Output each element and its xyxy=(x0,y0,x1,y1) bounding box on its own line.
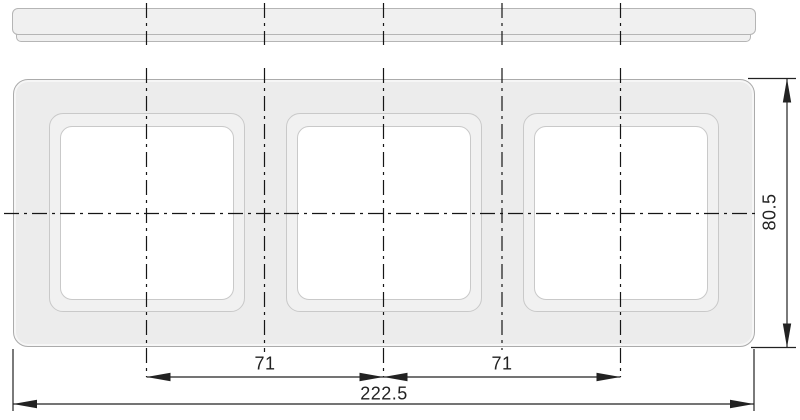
arrowhead-down-icon xyxy=(783,324,791,348)
arrowhead-right-icon xyxy=(597,373,621,381)
dimension-label-pitch-right: 71 xyxy=(491,354,512,375)
module-1-opening xyxy=(60,126,234,300)
dimension-label-overall-height: 80.5 xyxy=(760,193,781,230)
arrowhead-right-icon xyxy=(730,400,754,408)
arrowhead-left-icon xyxy=(13,400,37,408)
dimension-label-overall-width: 222.5 xyxy=(360,384,408,405)
arrowhead-right-icon xyxy=(360,373,384,381)
arrowhead-left-icon xyxy=(384,373,408,381)
module-2-opening xyxy=(297,126,471,300)
technical-drawing-canvas: 71 71 222.5 80.5 xyxy=(0,0,800,420)
module-3-opening xyxy=(534,126,708,300)
profile-body xyxy=(12,8,756,35)
arrowhead-left-icon xyxy=(147,373,171,381)
arrowhead-up-icon xyxy=(783,79,791,103)
dimension-label-pitch-left: 71 xyxy=(254,354,275,375)
